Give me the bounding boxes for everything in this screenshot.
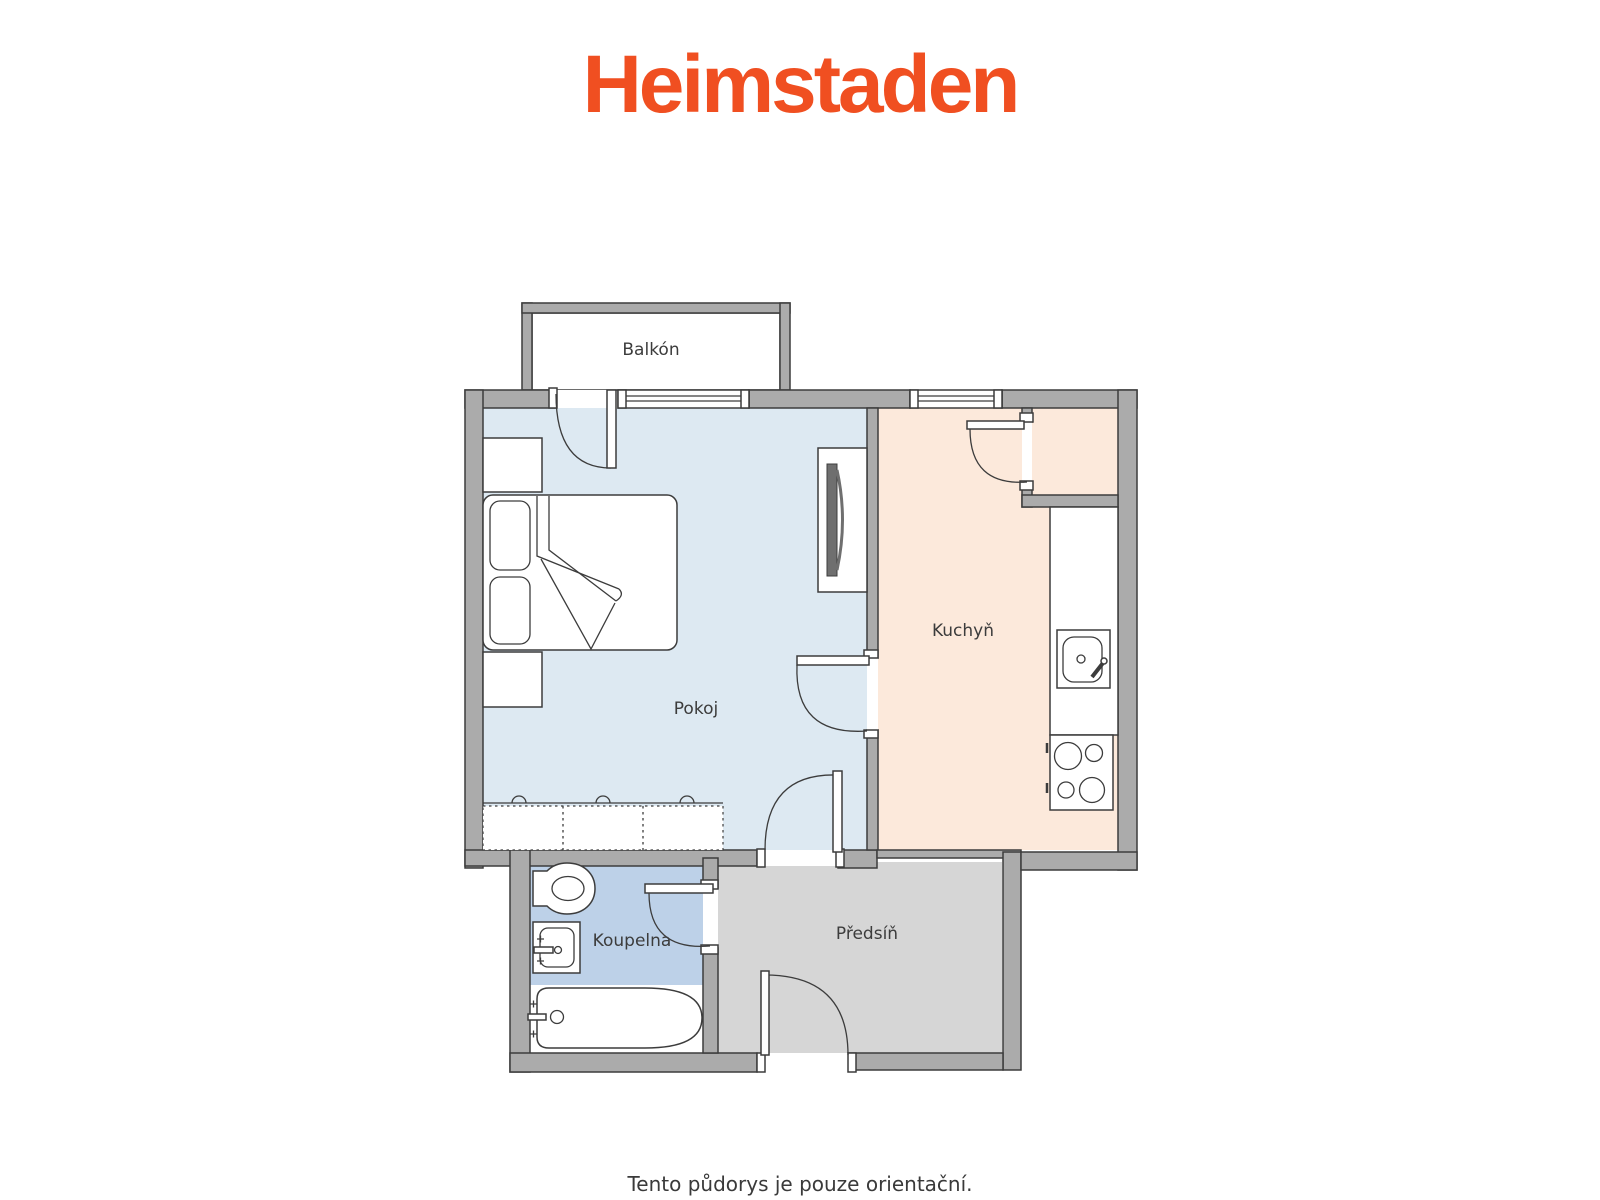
kitchen-sink	[1057, 630, 1110, 688]
cooktop	[1047, 735, 1113, 810]
room-label-koupelna: Koupelna	[593, 931, 672, 951]
double-bed	[483, 495, 677, 650]
washbasin	[533, 922, 580, 973]
kitchen-counter	[1050, 507, 1118, 735]
room-label-pokoj: Pokoj	[674, 699, 718, 719]
floorplan-drawing	[0, 0, 1600, 1200]
nightstand	[483, 652, 542, 707]
room-pantry	[1032, 408, 1118, 495]
page: { "logo": { "text": "Heimstaden", "color…	[0, 0, 1600, 1200]
tv-unit	[818, 448, 867, 592]
bathtub	[528, 988, 702, 1048]
window	[910, 390, 1002, 408]
disclaimer-caption: Tento půdorys je pouze orientační.	[627, 1172, 972, 1196]
toilet	[533, 863, 595, 914]
window	[618, 390, 749, 408]
nightstand	[483, 438, 542, 492]
room-label-predsin: Předsíň	[836, 924, 898, 944]
room-label-balkon: Balkón	[622, 340, 679, 360]
room-label-kuchyn: Kuchyň	[932, 621, 994, 641]
